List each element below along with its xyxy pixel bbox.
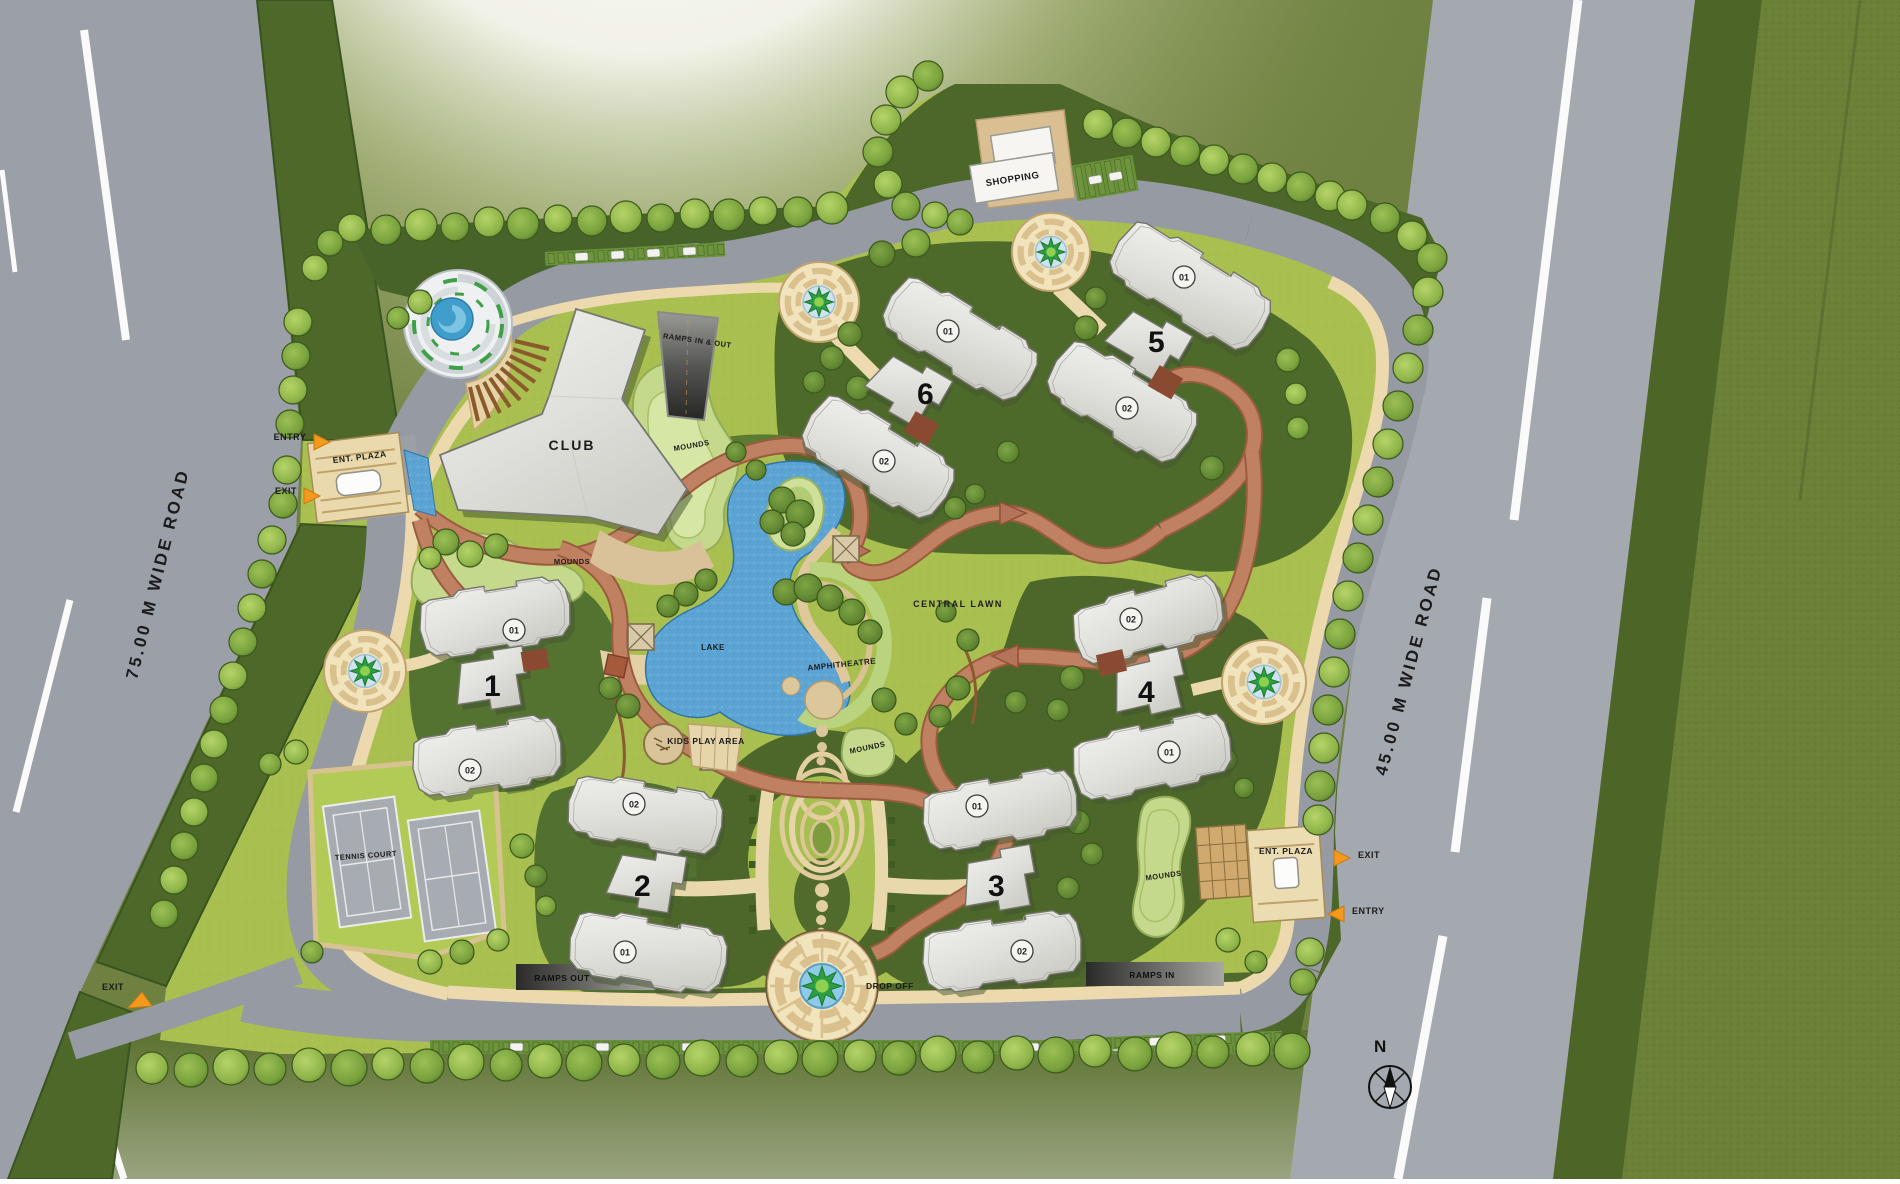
- svg-text:02: 02: [465, 766, 475, 776]
- svg-text:5: 5: [1148, 326, 1165, 359]
- svg-text:01: 01: [972, 802, 982, 812]
- svg-text:02: 02: [1122, 404, 1132, 414]
- svg-text:ENTRY: ENTRY: [1352, 906, 1385, 916]
- svg-text:CLUB: CLUB: [549, 437, 596, 453]
- svg-text:ENT. PLAZA: ENT. PLAZA: [1259, 846, 1313, 856]
- svg-text:ENTRY: ENTRY: [274, 432, 307, 442]
- svg-text:02: 02: [1017, 947, 1027, 957]
- svg-text:01: 01: [1179, 273, 1189, 283]
- svg-text:EXIT: EXIT: [275, 486, 297, 496]
- svg-text:EXIT: EXIT: [1358, 850, 1380, 860]
- svg-text:1: 1: [484, 670, 501, 703]
- svg-text:01: 01: [620, 948, 630, 958]
- svg-text:EXIT: EXIT: [102, 982, 124, 992]
- svg-text:02: 02: [879, 457, 889, 467]
- svg-text:2: 2: [634, 870, 651, 903]
- svg-text:02: 02: [629, 800, 639, 810]
- svg-text:01: 01: [943, 327, 953, 337]
- svg-text:RAMPS OUT: RAMPS OUT: [534, 973, 590, 983]
- svg-text:3: 3: [988, 870, 1005, 903]
- svg-text:LAKE: LAKE: [701, 643, 725, 652]
- svg-text:DROP OFF: DROP OFF: [866, 981, 914, 991]
- svg-text:N: N: [1374, 1037, 1386, 1056]
- svg-text:MOUNDS: MOUNDS: [554, 557, 590, 566]
- svg-text:6: 6: [917, 378, 934, 411]
- svg-text:RAMPS IN: RAMPS IN: [1129, 970, 1175, 980]
- svg-text:CENTRAL LAWN: CENTRAL LAWN: [913, 599, 1003, 609]
- svg-text:4: 4: [1138, 676, 1155, 709]
- svg-text:01: 01: [1164, 748, 1174, 758]
- svg-text:02: 02: [1126, 615, 1136, 625]
- svg-text:KIDS PLAY AREA: KIDS PLAY AREA: [667, 736, 745, 746]
- svg-text:01: 01: [509, 626, 519, 636]
